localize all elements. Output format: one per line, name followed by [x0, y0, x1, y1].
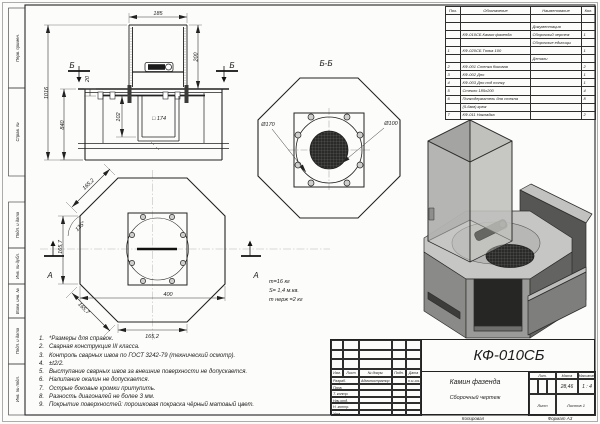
parts-cell-name: [531, 111, 582, 119]
doc-name: Камин фазенда: [422, 379, 528, 386]
title-block-left: Изм. Лист № докум. Подп. Дата Разраб.Адм…: [331, 340, 421, 416]
parts-cell-desig: КФ-002 Дно: [461, 71, 531, 79]
dim-square-label: □ 174: [152, 116, 166, 122]
sheets-label: Листов: [567, 403, 582, 408]
revision-cell: [359, 340, 392, 350]
parts-cell-pos: 7: [446, 111, 461, 119]
note-item: 7.Острые боковые кромки притупить.: [30, 385, 335, 393]
note-number: 5.: [30, 368, 49, 376]
col-izm: Изм.: [331, 369, 343, 377]
parts-cell-desig: КФ-020СБ Топка 100: [461, 47, 531, 55]
parts-cell-qty: 1: [582, 31, 596, 39]
parts-cell-qty: 2: [582, 111, 596, 119]
front-view: [78, 25, 229, 160]
iso-3d-view: [424, 120, 592, 338]
parts-cell-qty: [582, 15, 596, 23]
parts-cell-desig: [461, 39, 531, 47]
mass-line: m=16 кг: [269, 279, 290, 285]
parts-cell-name: Сборочный чертеж: [531, 31, 582, 39]
sheets-cell: Листов 1: [556, 394, 596, 416]
dim-width-label: 185: [153, 11, 163, 17]
revision-cell: [331, 350, 343, 360]
parts-cell-qty: 2: [582, 63, 596, 71]
mass-stainless-line: m нерж =2 кг: [269, 297, 303, 303]
parts-cell-qty: [582, 23, 596, 31]
note-number: 4.: [30, 360, 49, 368]
col-list: Лист: [343, 369, 359, 377]
dia-outer-label: Ø170: [260, 122, 275, 128]
sheet-cell: Лист: [529, 394, 556, 416]
revision-cell: [343, 340, 359, 350]
parts-cell-qty: [582, 103, 596, 111]
parts-cell-pos: [446, 103, 461, 111]
parts-cell-name: Детали: [531, 55, 582, 63]
parts-table-row: Сборочные единицы: [446, 39, 596, 47]
note-item: 4.±t2/2.: [30, 360, 335, 368]
section-b-label: Б: [229, 61, 234, 70]
lit-cell: [529, 379, 538, 394]
note-item: 2.Сварная конструкция III класса.: [30, 343, 335, 351]
parts-cell-qty: 8: [582, 95, 596, 103]
parts-cell-pos: 6: [446, 95, 461, 103]
parts-cell-name: [531, 103, 582, 111]
title-block-right: Лит. Масса Масштаб 28,46 1 : 4 Лист Лист…: [529, 372, 596, 416]
parts-cell-desig: [461, 55, 531, 63]
margin-label: Перв. примен.: [15, 34, 20, 62]
parts-cell-name: [531, 63, 582, 71]
note-number: 6.: [30, 376, 49, 384]
parts-cell-desig: КФ-010СБ Камин фазенда: [461, 31, 531, 39]
parts-cell-name: Сборочные единицы: [531, 39, 582, 47]
role-value: [359, 410, 392, 417]
note-number: 9.: [30, 401, 49, 409]
parts-cell-name: [531, 79, 582, 87]
note-number: 3.: [30, 352, 49, 360]
parts-cell-qty: [582, 55, 596, 63]
parts-table-row: КФ-010СБ Камин фазендаСборочный чертеж1: [446, 31, 596, 39]
signature-header: Изм. Лист № докум. Подп. Дата: [331, 369, 421, 377]
parts-cell-desig: КФ-001 Стенка боковая: [461, 63, 531, 71]
parts-table-row: [446, 15, 596, 23]
note-item: 3.Контроль сварных швов по ГОСТ 3242-79 …: [30, 352, 335, 360]
dim-total-height-label: 1016: [44, 86, 50, 99]
margin-label: Подп. и дата: [15, 327, 20, 354]
sheets-value: 1: [583, 403, 585, 408]
note-text: Сварная конструкция III класса.: [49, 343, 140, 351]
col-doc: № докум.: [359, 369, 392, 377]
parts-table-header: Поз. Обозначение Наименование Кол.: [446, 7, 596, 15]
width-dim-label: 400: [163, 292, 173, 298]
parts-cell-pos: 5: [446, 87, 461, 95]
note-text: *Размеры для справок.: [49, 335, 114, 343]
parts-cell-name: [531, 71, 582, 79]
revision-cell: [359, 359, 392, 369]
margin-labels: Перв. примен. Справ. № Подп. и дата Инв.…: [15, 34, 20, 402]
parts-cell-pos: 4: [446, 79, 461, 87]
signature-rows: Разраб.Администратор8.11.2013Пров.Т. кон…: [331, 377, 421, 416]
note-text: ±t2/2.: [49, 360, 64, 368]
parts-cell-qty: [582, 39, 596, 47]
parts-cell-desig: (5-6мм) крюк: [461, 103, 531, 111]
margin-label: Подп. и дата: [15, 211, 20, 238]
parts-cell-name: [531, 15, 582, 23]
parts-cell-pos: [446, 39, 461, 47]
edge-bottom-left-dim-label: 165,7: [76, 302, 91, 317]
angle-dim-label: 135°: [75, 220, 88, 233]
mass-note: m=16 кг S= 1,4 м.кв. m нерж =2 кг: [269, 279, 303, 303]
note-text: Выступание сварных швов за внешние повер…: [49, 368, 247, 376]
parts-cell-desig: Стекло 185х200: [461, 87, 531, 95]
parts-cell-pos: [446, 23, 461, 31]
col-qty: Кол.: [582, 7, 596, 15]
mass-label: Масса: [556, 372, 578, 379]
title-block: КФ-010СБ Камин фазенда Сборочный чертеж …: [330, 339, 595, 415]
revision-cell: [406, 350, 421, 360]
note-item: 9.Покрытие поверхностей: порошковая покр…: [30, 401, 335, 409]
dim-offset-label: 20: [85, 75, 91, 83]
revision-cell: [343, 350, 359, 360]
parts-cell-desig: [461, 23, 531, 31]
margin-label: Взам. инв. №: [15, 288, 20, 314]
role-sign: [392, 410, 406, 417]
revision-cell: [392, 350, 406, 360]
parts-cell-pos: 3: [446, 71, 461, 79]
note-number: 7.: [30, 385, 49, 393]
technical-notes: 1.*Размеры для справок.2.Сварная констру…: [30, 335, 335, 410]
section-view-bb: Б-Б Ø170 Ø100: [258, 59, 400, 218]
note-text: Острые боковые кромки притупить.: [49, 385, 156, 393]
parts-table-row: 2КФ-001 Стенка боковая2: [446, 63, 596, 71]
revision-grid: [331, 340, 421, 369]
parts-cell-desig: [461, 15, 531, 23]
parts-cell-desig: КФ-011 Накладка: [461, 111, 531, 119]
margin-label: Инв. № дубл.: [15, 253, 20, 279]
note-text: Контроль сварных швов по ГОСТ 3242-79 (т…: [49, 352, 235, 360]
col-designation: Обозначение: [461, 7, 531, 15]
parts-table-row: 1КФ-020СБ Топка 1001: [446, 47, 596, 55]
note-number: 1.: [30, 335, 49, 343]
section-a-label: А: [46, 271, 52, 280]
doc-name-cell: Камин фазенда Сборочный чертеж: [421, 372, 529, 416]
scale-value: 1 : 4: [578, 379, 596, 394]
edge-top-dim-label: 165,2: [82, 178, 96, 192]
revision-cell: [331, 340, 343, 350]
note-item: 8.Разность диагоналей не более 3 мм.: [30, 393, 335, 401]
dim-body-height-label: 840: [60, 119, 66, 129]
parts-table-row: (5-6мм) крюк: [446, 103, 596, 111]
front-view-dimensions: [44, 13, 238, 160]
parts-cell-desig: КФ-003 Дно под топку: [461, 79, 531, 87]
drawing-sheet: Перв. примен. Справ. № Подп. и дата Инв.…: [0, 0, 600, 424]
parts-cell-qty: 4: [582, 87, 596, 95]
lit-cell: [547, 379, 556, 394]
parts-table-row: 6Полкодержатель для стекла8: [446, 95, 596, 103]
parts-cell-qty: 1: [582, 47, 596, 55]
dim-inner-label: 102: [116, 112, 122, 121]
col-name: Наименование: [531, 7, 582, 15]
parts-cell-qty: 1: [582, 79, 596, 87]
scale-label: Масштаб: [578, 372, 596, 379]
section-b-label: Б: [69, 61, 74, 70]
col-podp: Подп.: [392, 369, 406, 377]
parts-cell-pos: [446, 15, 461, 23]
col-data: Дата: [406, 369, 421, 377]
copied-label: Копировал: [443, 416, 503, 421]
note-text: Налипание окалин не допускается.: [49, 376, 149, 384]
role-label: Утв.: [331, 410, 359, 417]
note-item: 6.Налипание окалин не допускается.: [30, 376, 335, 384]
mass-value: 28,46: [556, 379, 578, 394]
parts-cell-pos: 2: [446, 63, 461, 71]
revision-cell: [406, 359, 421, 369]
note-text: Разность диагоналей не более 3 мм.: [49, 393, 154, 401]
parts-cell-desig: Полкодержатель для стекла: [461, 95, 531, 103]
parts-table-row: Детали: [446, 55, 596, 63]
format-label: Формат А3: [530, 416, 590, 421]
revision-cell: [331, 359, 343, 369]
revision-cell: [359, 350, 392, 360]
margin-label: Справ. №: [15, 122, 20, 141]
lit-label: Лит.: [529, 372, 556, 379]
doc-type: Сборочный чертеж: [422, 395, 528, 401]
revision-cell: [392, 340, 406, 350]
revision-cell: [392, 359, 406, 369]
section-a-label: А: [252, 271, 258, 280]
margin-label: Инв. № подл.: [15, 376, 20, 402]
parts-cell-name: [531, 47, 582, 55]
note-number: 8.: [30, 393, 49, 401]
dim-chimney-height-label: 200: [194, 51, 200, 62]
edge-left-dim-label: 165,7: [58, 239, 64, 254]
parts-table-row: 7КФ-011 Накладка2: [446, 111, 596, 119]
parts-cell-pos: 1: [446, 47, 461, 55]
note-item: 5.Выступание сварных швов за внешние пов…: [30, 368, 335, 376]
note-text: Покрытие поверхностей: порошковая покрас…: [49, 401, 254, 409]
col-pos: Поз.: [446, 7, 461, 15]
parts-table-row: Документация: [446, 23, 596, 31]
dia-inner-label: Ø100: [383, 121, 398, 127]
role-date: [406, 410, 421, 417]
parts-cell-name: [531, 95, 582, 103]
parts-cell-pos: [446, 55, 461, 63]
lit-cell: [538, 379, 547, 394]
parts-table-row: 5Стекло 185х2004: [446, 87, 596, 95]
parts-cell-name: [531, 87, 582, 95]
parts-table-row: 3КФ-002 Дно1: [446, 71, 596, 79]
bottom-view: 165,2 135° 165,7 165,7 400 165,2 А А: [40, 164, 330, 340]
parts-cell-qty: 1: [582, 71, 596, 79]
section-bb-title: Б-Б: [319, 59, 332, 68]
note-item: 1.*Размеры для справок.: [30, 335, 335, 343]
revision-cell: [343, 359, 359, 369]
revision-cell: [406, 340, 421, 350]
note-number: 2.: [30, 343, 49, 351]
parts-table-row: 4КФ-003 Дно под топку1: [446, 79, 596, 87]
parts-cell-pos: [446, 31, 461, 39]
parts-table: Поз. Обозначение Наименование Кол. Докум…: [445, 6, 596, 120]
area-line: S= 1,4 м.кв.: [269, 288, 299, 294]
doc-number: КФ-010СБ: [421, 340, 596, 372]
parts-cell-name: Документация: [531, 23, 582, 31]
